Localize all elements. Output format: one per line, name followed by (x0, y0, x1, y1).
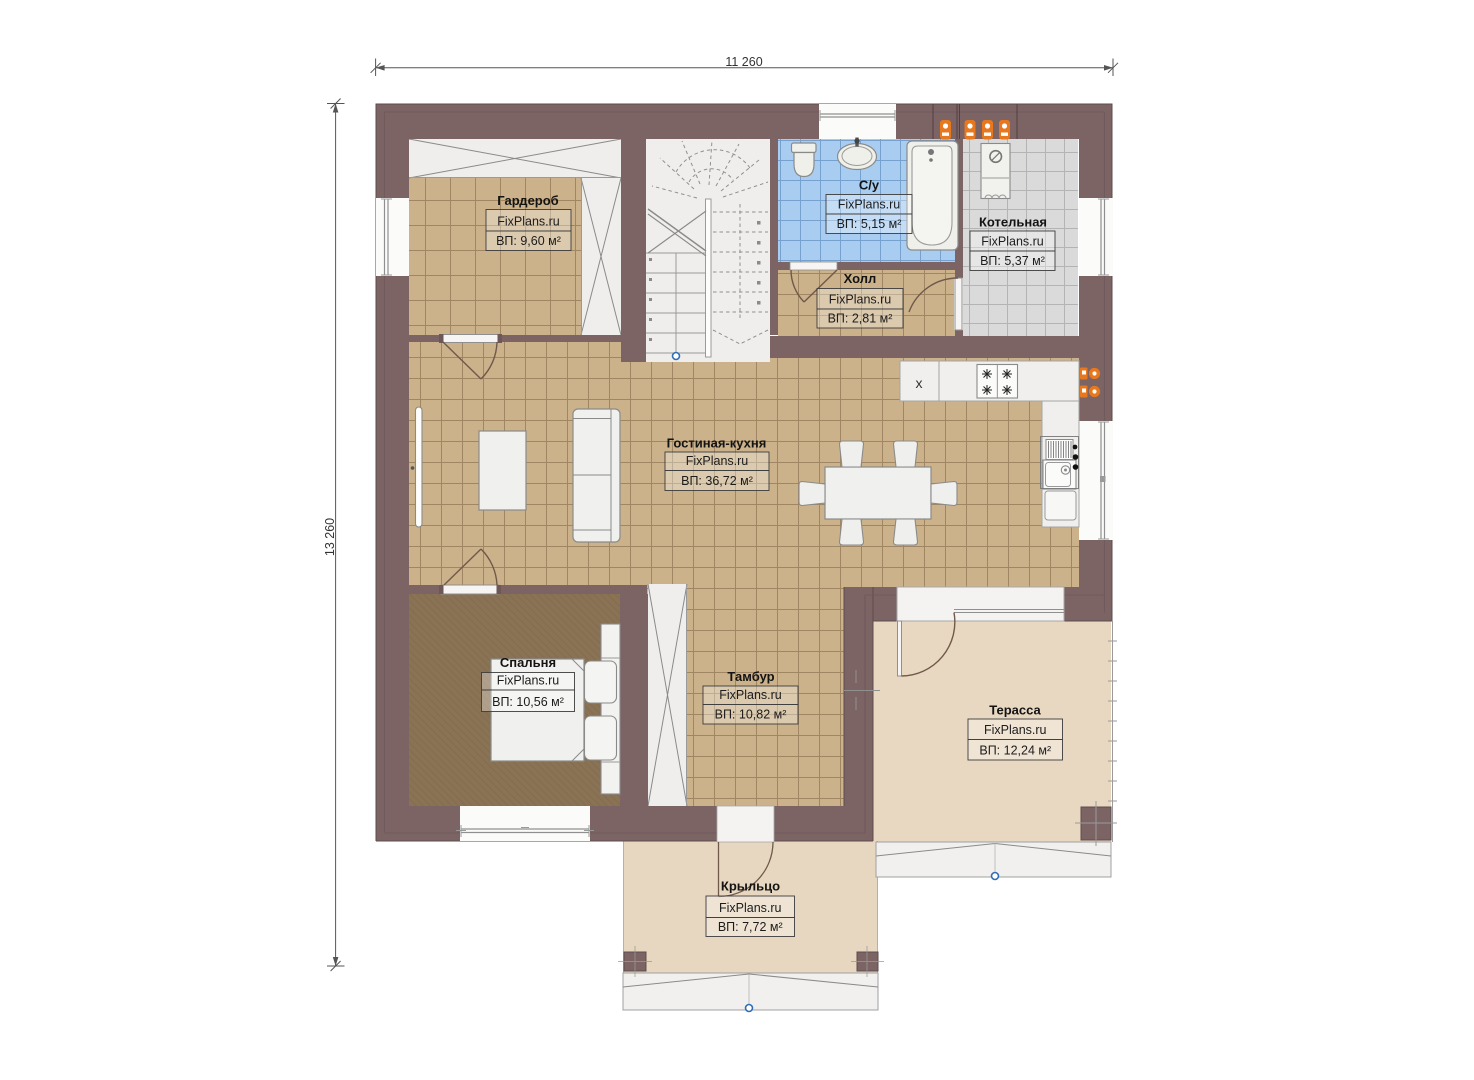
svg-text:ВП: 2,81 м²: ВП: 2,81 м² (828, 312, 893, 326)
svg-text:ВП: 10,82 м²: ВП: 10,82 м² (715, 708, 787, 722)
svg-text:ВП: 12,24 м²: ВП: 12,24 м² (979, 744, 1051, 758)
svg-text:Котельная: Котельная (979, 215, 1047, 230)
svg-text:11 260: 11 260 (725, 55, 762, 69)
svg-text:FixPlans.ru: FixPlans.ru (984, 723, 1047, 737)
svg-text:Гардероб: Гардероб (497, 193, 558, 208)
svg-text:ВП: 36,72 м²: ВП: 36,72 м² (681, 474, 753, 488)
svg-text:Спальня: Спальня (500, 655, 556, 670)
svg-text:ВП: 5,15 м²: ВП: 5,15 м² (837, 217, 902, 231)
svg-text:ВП: 9,60 м²: ВП: 9,60 м² (496, 234, 561, 248)
svg-text:FixPlans.ru: FixPlans.ru (981, 235, 1044, 249)
svg-text:ВП: 7,72 м²: ВП: 7,72 м² (718, 920, 783, 934)
svg-text:ВП: 5,37 м²: ВП: 5,37 м² (980, 254, 1045, 268)
svg-text:x: x (916, 375, 923, 391)
svg-text:FixPlans.ru: FixPlans.ru (719, 901, 782, 915)
svg-text:13 260: 13 260 (323, 518, 337, 556)
svg-text:Тамбур: Тамбур (727, 669, 774, 684)
svg-text:ВП: 10,56 м²: ВП: 10,56 м² (492, 695, 564, 709)
svg-text:FixPlans.ru: FixPlans.ru (719, 688, 782, 702)
svg-text:FixPlans.ru: FixPlans.ru (838, 198, 901, 212)
svg-text:Холл: Холл (844, 271, 877, 286)
svg-text:FixPlans.ru: FixPlans.ru (497, 215, 560, 229)
svg-text:FixPlans.ru: FixPlans.ru (829, 293, 892, 307)
svg-text:С/у: С/у (859, 178, 880, 193)
svg-text:FixPlans.ru: FixPlans.ru (497, 674, 560, 688)
svg-text:Гостиная-кухня: Гостиная-кухня (667, 436, 767, 451)
svg-text:Терасса: Терасса (989, 703, 1041, 718)
svg-text:Крыльцо: Крыльцо (721, 879, 780, 894)
svg-text:FixPlans.ru: FixPlans.ru (686, 454, 749, 468)
